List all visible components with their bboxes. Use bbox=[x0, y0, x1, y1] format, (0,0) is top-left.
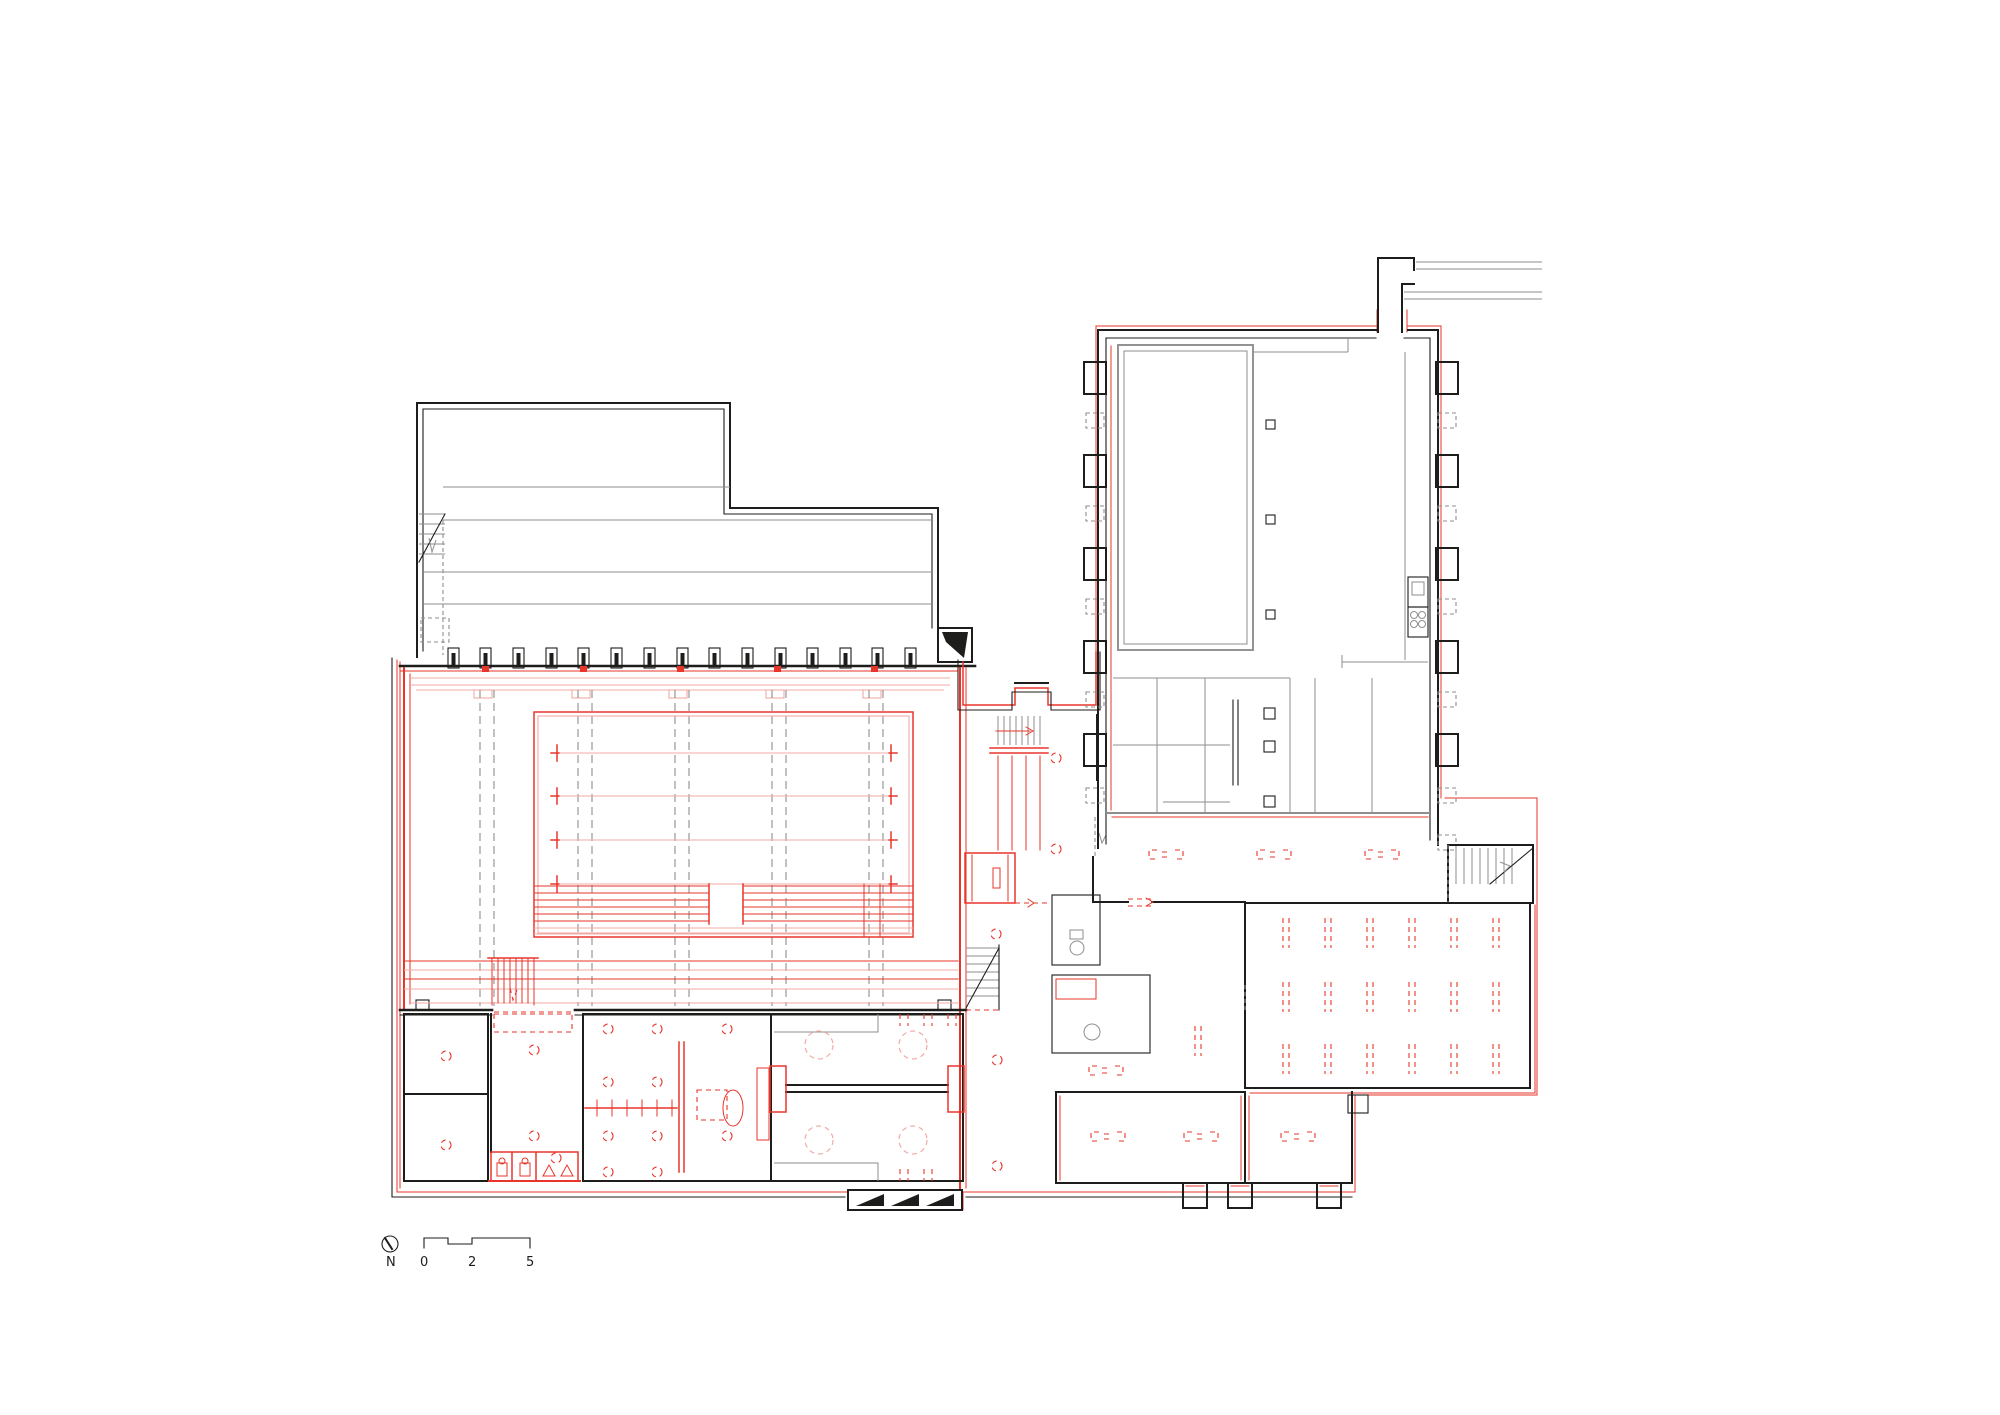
pool-steps bbox=[534, 884, 913, 937]
stair-southwest bbox=[488, 958, 572, 1032]
grid-lines bbox=[480, 690, 883, 1006]
scale-tick-2: 2 bbox=[468, 1255, 476, 1270]
vent-box bbox=[848, 1190, 962, 1210]
wc-fixture-2 bbox=[520, 1158, 530, 1176]
room-c bbox=[489, 1014, 583, 1181]
concourse-steps bbox=[404, 961, 958, 1003]
room-a bbox=[404, 1014, 488, 1094]
upper-building bbox=[417, 403, 972, 662]
ramp-rails bbox=[998, 756, 1040, 850]
bottom-left-rooms bbox=[404, 1014, 964, 1210]
room-e bbox=[770, 1014, 964, 1181]
pilasters-left bbox=[1084, 362, 1106, 803]
north-arrow bbox=[382, 1236, 398, 1252]
inner-court bbox=[1118, 338, 1405, 660]
kitchen-unit bbox=[1342, 577, 1428, 668]
stair-northeast bbox=[1448, 845, 1533, 903]
pilasters-right bbox=[1436, 362, 1458, 850]
connector bbox=[958, 652, 1201, 1171]
vent-markers bbox=[1283, 918, 1499, 1074]
scale-bar-line bbox=[424, 1238, 530, 1248]
floor-plan: N 0 2 5 bbox=[0, 0, 2000, 1415]
court-columns bbox=[1266, 420, 1275, 619]
bottom-right-rooms bbox=[1056, 1092, 1368, 1208]
stair-north bbox=[990, 716, 1048, 753]
drawing-sheet: N 0 2 5 bbox=[0, 0, 2000, 1415]
scale-bar: N 0 2 5 bbox=[382, 1236, 534, 1270]
chimney bbox=[1378, 258, 1542, 332]
right-building bbox=[1084, 258, 1542, 906]
scale-tick-0: 0 bbox=[420, 1255, 428, 1270]
colonnade bbox=[400, 648, 975, 672]
shower-triangles bbox=[543, 1153, 573, 1176]
elevator bbox=[965, 853, 1050, 907]
changing-cubicles bbox=[1106, 678, 1430, 817]
lane-lines bbox=[551, 745, 897, 892]
north-label: N bbox=[386, 1255, 396, 1270]
center-bench bbox=[770, 1066, 964, 1112]
stair-west bbox=[966, 945, 999, 1010]
room-b bbox=[404, 1094, 488, 1181]
wc-stalls bbox=[489, 1152, 580, 1181]
grid-room bbox=[1245, 903, 1535, 1093]
scale-tick-5: 5 bbox=[526, 1255, 534, 1270]
comb-bench bbox=[585, 1100, 677, 1116]
swimming-pool bbox=[534, 712, 913, 937]
corner-block bbox=[938, 628, 972, 662]
wc-fixture-1 bbox=[497, 1158, 507, 1176]
service-rooms bbox=[1052, 895, 1201, 1075]
dashed-opening bbox=[421, 618, 449, 642]
buttresses bbox=[1183, 1183, 1341, 1208]
room-d bbox=[583, 1014, 771, 1181]
corridor-markers bbox=[1149, 850, 1399, 859]
stair-landing bbox=[494, 1012, 572, 1032]
